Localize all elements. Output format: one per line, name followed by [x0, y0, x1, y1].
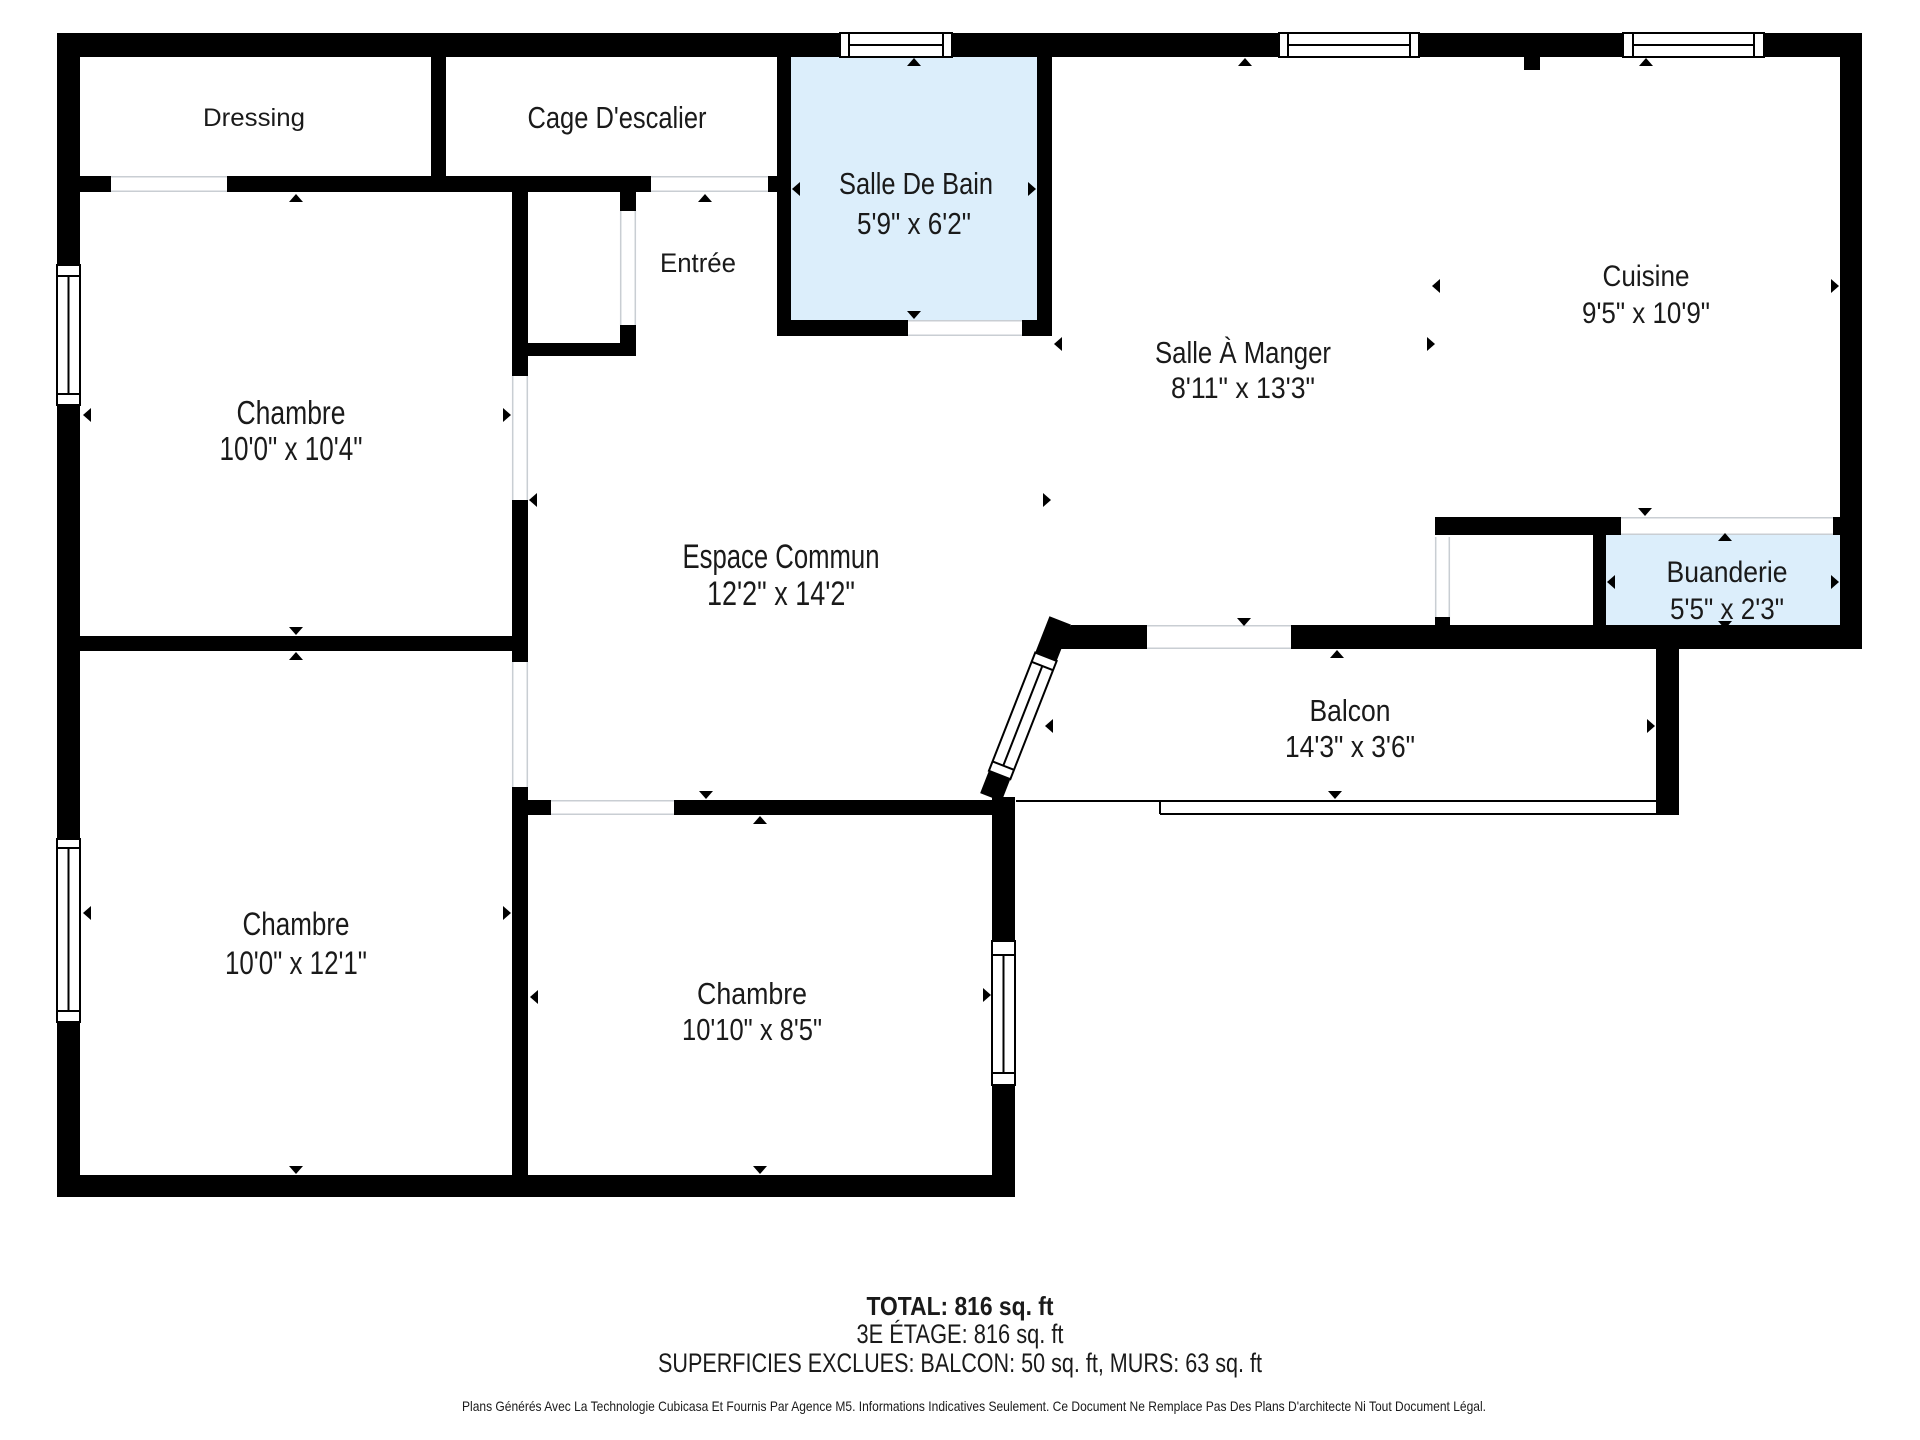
- svg-text:10'0" x 12'1": 10'0" x 12'1": [225, 945, 367, 981]
- svg-text:Chambre: Chambre: [697, 976, 807, 1011]
- svg-text:TOTAL: 816 sq. ft: TOTAL: 816 sq. ft: [867, 1291, 1054, 1321]
- svg-text:Cage D'escalier: Cage D'escalier: [528, 100, 707, 135]
- svg-text:Chambre: Chambre: [243, 906, 350, 942]
- svg-text:SUPERFICIES EXCLUES: BALCON: 5: SUPERFICIES EXCLUES: BALCON: 50 sq. ft, …: [658, 1348, 1262, 1378]
- svg-text:Plans Générés Avec La Technolo: Plans Générés Avec La Technologie Cubica…: [462, 1398, 1486, 1414]
- svg-text:5'9" x 6'2": 5'9" x 6'2": [857, 206, 971, 241]
- svg-text:Salle À Manger: Salle À Manger: [1155, 335, 1331, 370]
- svg-text:10'10" x 8'5": 10'10" x 8'5": [682, 1012, 822, 1047]
- svg-text:Chambre: Chambre: [237, 394, 346, 431]
- svg-text:Buanderie: Buanderie: [1667, 556, 1788, 589]
- svg-text:5'5" x 2'3": 5'5" x 2'3": [1670, 593, 1784, 626]
- svg-text:3E ÉTAGE: 816 sq. ft: 3E ÉTAGE: 816 sq. ft: [857, 1319, 1064, 1349]
- svg-text:Balcon: Balcon: [1310, 693, 1391, 728]
- svg-text:9'5" x 10'9": 9'5" x 10'9": [1582, 297, 1710, 330]
- svg-text:Entrée: Entrée: [660, 248, 736, 278]
- svg-text:14'3" x 3'6": 14'3" x 3'6": [1285, 729, 1415, 764]
- svg-text:10'0" x 10'4": 10'0" x 10'4": [220, 430, 363, 467]
- svg-text:Cuisine: Cuisine: [1603, 260, 1690, 293]
- svg-text:Espace Commun: Espace Commun: [683, 538, 880, 576]
- svg-text:Dressing: Dressing: [203, 104, 305, 132]
- svg-text:8'11" x 13'3": 8'11" x 13'3": [1171, 372, 1315, 405]
- svg-text:12'2" x 14'2": 12'2" x 14'2": [707, 575, 855, 613]
- svg-text:Salle De Bain: Salle De Bain: [839, 166, 993, 201]
